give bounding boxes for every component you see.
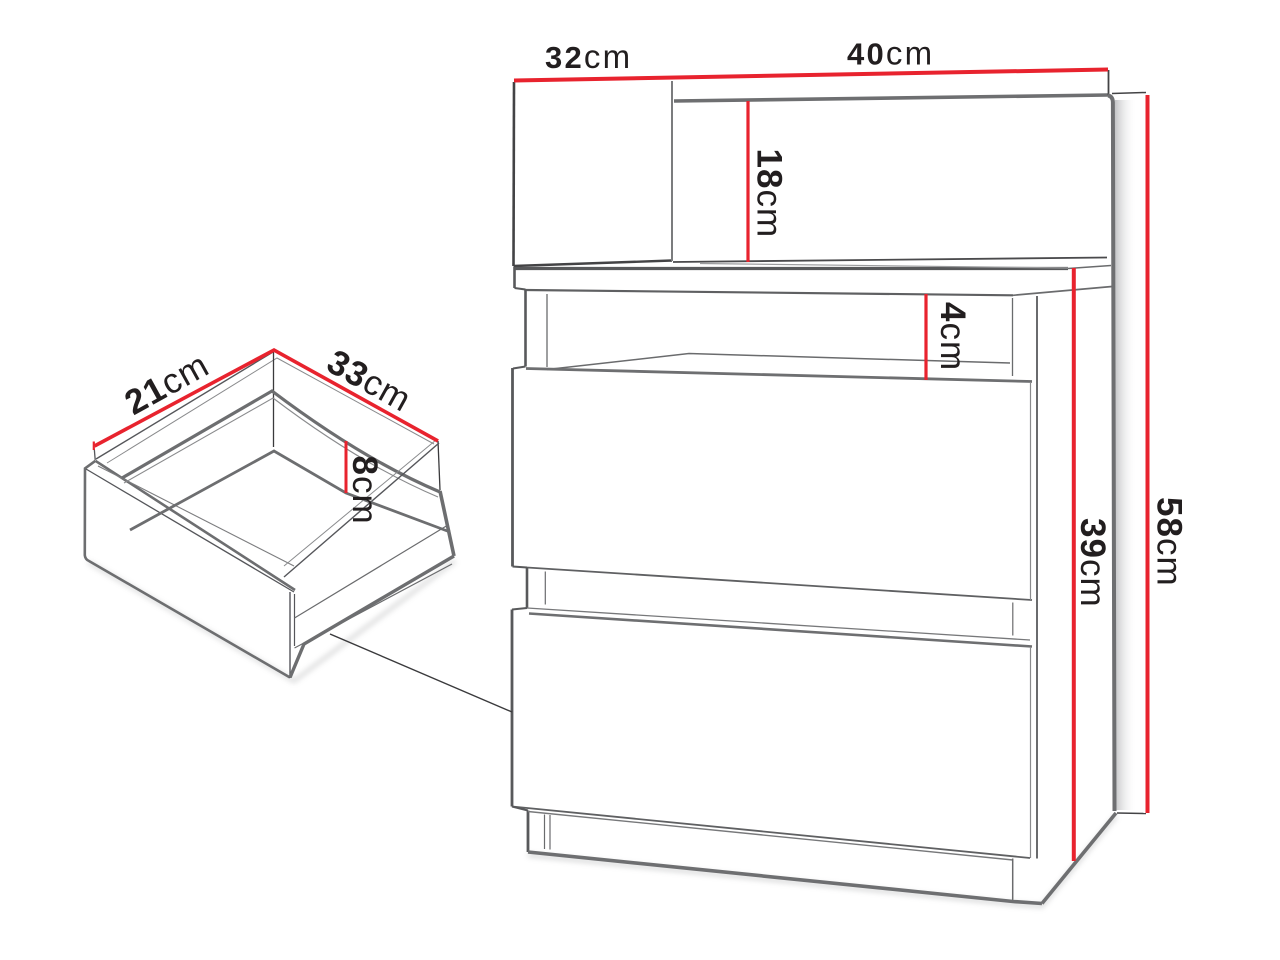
svg-text:18cm: 18cm	[750, 149, 789, 239]
svg-text:40cm: 40cm	[847, 35, 934, 72]
svg-text:8cm: 8cm	[345, 456, 384, 525]
svg-text:39cm: 39cm	[1073, 518, 1112, 608]
svg-text:4cm: 4cm	[933, 302, 972, 371]
svg-text:32cm: 32cm	[545, 38, 632, 75]
svg-text:58cm: 58cm	[1150, 497, 1189, 587]
